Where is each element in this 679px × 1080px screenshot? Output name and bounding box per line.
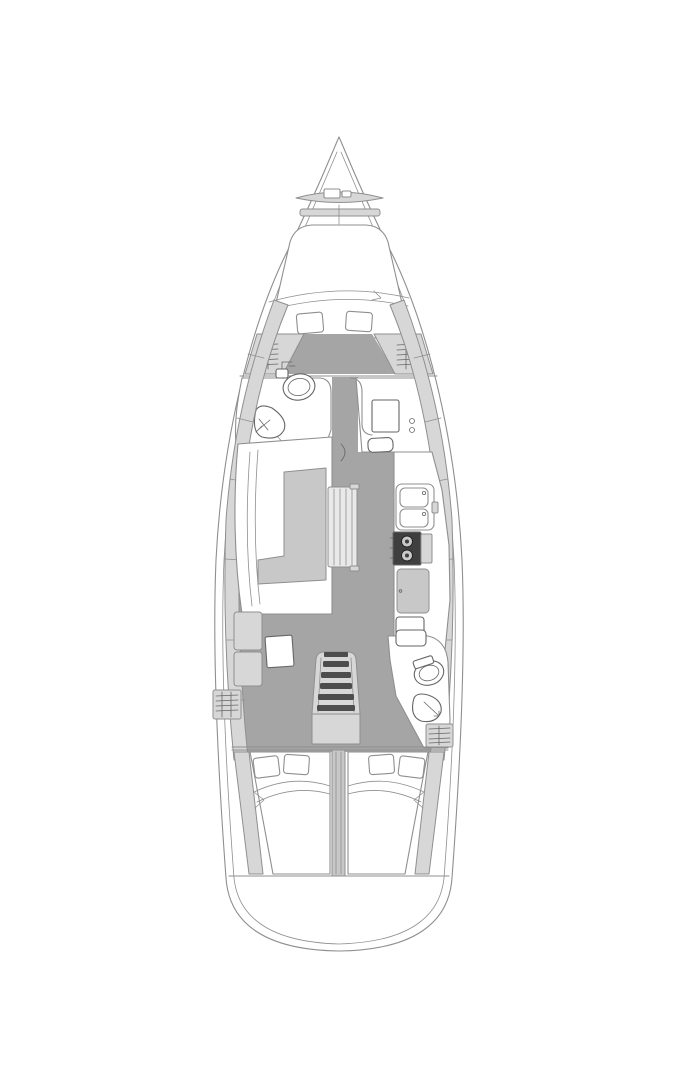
step-tread (320, 683, 352, 689)
pillow (398, 756, 425, 779)
step-tread (321, 672, 351, 678)
floor-plan-page (0, 0, 679, 1080)
nav-seat (368, 437, 394, 452)
folding-table-leaf (328, 484, 359, 571)
pillow (368, 754, 394, 775)
windlass (324, 189, 340, 198)
salon-aft-cabinet (234, 612, 262, 650)
center-divider (332, 750, 345, 876)
toilet-cistern (276, 369, 288, 378)
engine-box (312, 714, 360, 744)
v-berth (268, 225, 410, 338)
salon-aft-cabinet (234, 652, 262, 686)
companionway (312, 652, 360, 744)
pillow (296, 312, 324, 334)
chart-desk (372, 400, 399, 432)
windlass-gypsy (342, 191, 351, 197)
side-seat (265, 635, 294, 668)
pillow (345, 311, 372, 332)
sink-faucet (432, 502, 438, 513)
step-tread (317, 705, 355, 711)
pillow (283, 754, 309, 775)
double-sink (396, 484, 438, 530)
hanging-locker-port-aft (213, 690, 241, 719)
pillow (253, 755, 280, 778)
vanity-cabinet (396, 630, 426, 646)
step-tread (318, 694, 354, 700)
two-burner-stove (390, 532, 432, 565)
step-tread (324, 652, 348, 657)
step-tread (323, 661, 349, 667)
deck-track (300, 209, 380, 216)
hanging-locker-starboard-aft (426, 724, 453, 747)
sailboat-floor-plan (0, 0, 679, 1080)
